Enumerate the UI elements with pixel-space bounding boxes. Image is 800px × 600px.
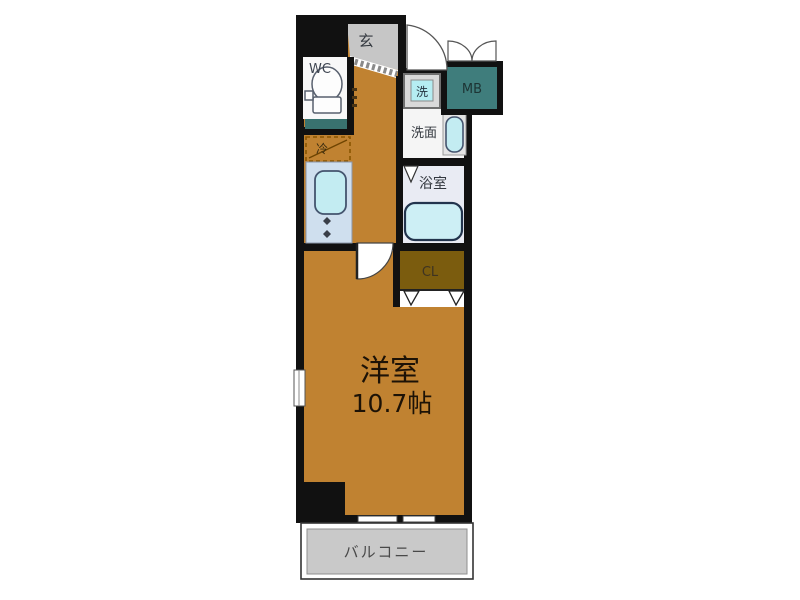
bathtub [405,203,462,240]
wc-label: WC [309,62,331,77]
meter-box-label: MB [462,82,482,97]
entrance-door-swing [407,25,447,70]
closet-folding-doors [400,289,464,307]
wall-left-upper [296,15,304,370]
floor-plan-page: WC 冷 洗 洗面 MB 玄 浴室 CL [0,0,800,600]
washer-label: 洗 [416,85,428,99]
wall-closet-left [393,243,400,307]
balcony-window-right [403,516,435,522]
meter-box-door-right [472,41,496,61]
bathroom-label: 浴室 [419,175,447,192]
left-window [294,370,305,406]
wc-shelf [305,119,347,129]
wall-washroom-bathroom [396,158,472,166]
balcony-label: バルコニー [344,543,429,561]
wall-entry-door-leaf [398,15,406,75]
vanity-sink [446,117,463,152]
main-room-size: 10.7帖 [352,389,433,418]
washroom-label: 洗面 [411,126,437,141]
floor-plan-canvas: WC 冷 洗 洗面 MB 玄 浴室 CL [0,0,800,600]
closet-label: CL [422,265,439,280]
meter-box-door-left [448,41,472,61]
main-room-name: 洋室 [360,354,420,389]
wc-door-ticks [352,88,357,107]
wall-right [464,105,472,523]
kitchen-sink [315,171,346,214]
balcony-window-left [358,516,397,522]
wall-left-lower [296,406,304,523]
refrigerator-label: 冷 [316,142,328,156]
entrance-label: 玄 [358,32,373,50]
